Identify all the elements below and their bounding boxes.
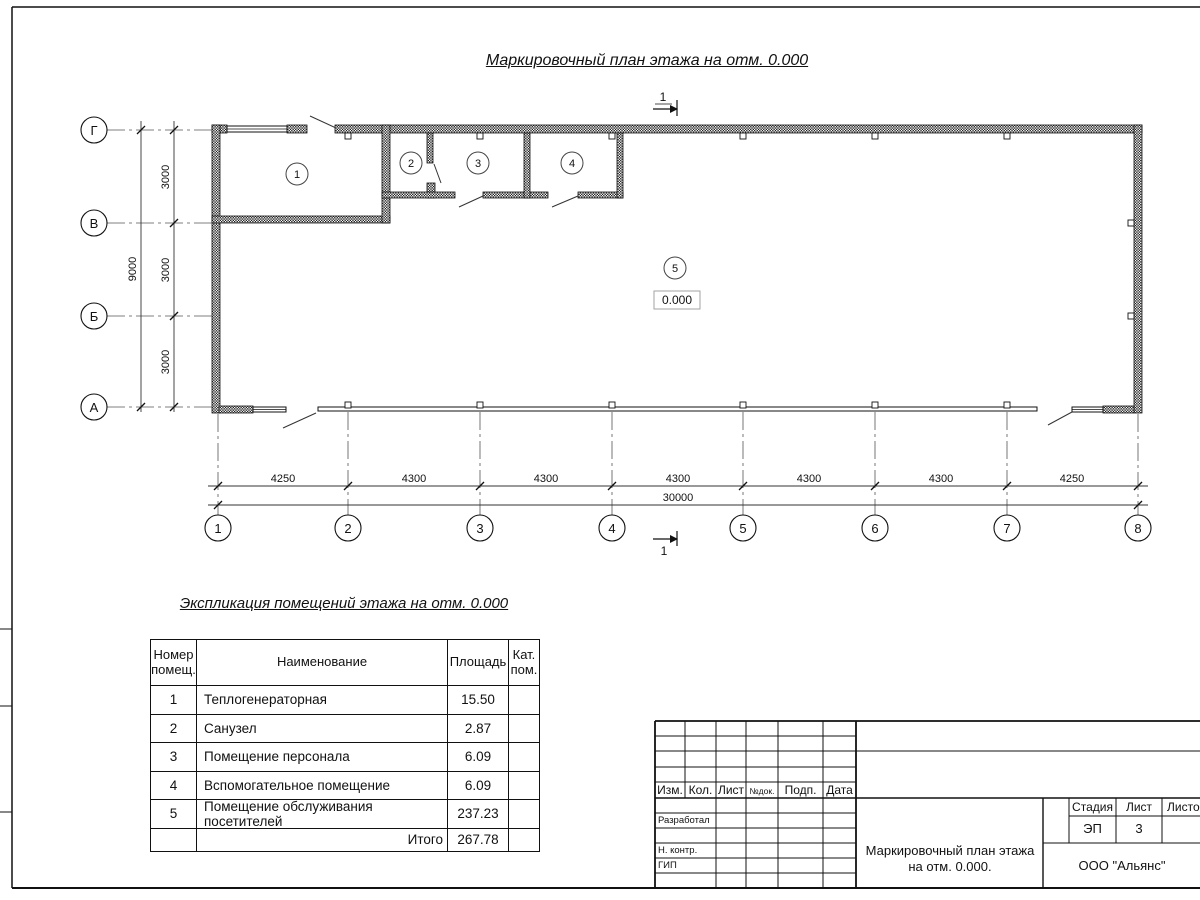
row-num: 5 [151,800,197,829]
row-name: Помещение обслуживания посетителей [197,800,448,829]
windows [227,126,1103,412]
axis-number-5: 5 [739,521,746,536]
plan-title: Маркировочный план этажа на отм. 0.000 [397,52,897,70]
col-header-number: Номер помещ. [151,640,197,686]
rev-header-data: Дата [823,783,856,797]
company-name: ООО "Альянс" [1044,858,1200,874]
rev-header-izm: Изм. [655,783,685,797]
row-category [509,715,539,744]
dim-4-5: 4300 [666,473,690,485]
doc-title: Маркировочный план этажа на отм. 0.000. [858,843,1042,875]
dim-7-8: 4250 [1060,473,1084,485]
row-name: Теплогенераторная [197,686,448,715]
dim-5-6: 4300 [797,473,821,485]
total-label: Итого [197,829,448,851]
role-developed: Разработал [658,815,716,827]
axis-number-2: 2 [344,521,351,536]
stage-value: ЭП [1069,821,1116,837]
rev-header-podp: Подп. [778,783,823,797]
axis-letter-v: В [90,216,99,231]
total-category [509,829,539,851]
row-name: Помещение персонала [197,743,448,772]
axis-number-1: 1 [214,521,221,536]
row-area: 237.23 [448,800,509,829]
axis-number-7: 7 [1003,521,1010,536]
total-row-empty [151,829,197,851]
axis-bubbles: Г В Б А 1 2 3 4 5 6 7 8 [81,117,1151,541]
row-category [509,772,539,801]
row-num: 3 [151,743,197,772]
storefront-glazing [318,402,1037,411]
role-gip: ГИП [658,860,716,872]
dimension-ticks [137,126,1142,509]
axis-letter-a: А [90,400,99,415]
axis-number-3: 3 [476,521,483,536]
rev-header-list: Лист [716,783,746,797]
section-label-bottom: 1 [661,544,668,558]
explication-title: Экспликация помещений этажа на отм. 0.00… [150,595,538,612]
row-num: 4 [151,772,197,801]
section-label-top: 1 [660,90,667,104]
sheet-label: Лист [1116,800,1162,815]
sheets-label: Листов [1167,800,1200,815]
dim-3-4: 4300 [534,473,558,485]
axis-number-6: 6 [871,521,878,536]
row-category [509,686,539,715]
row-area: 2.87 [448,715,509,744]
dim-b-a: 3000 [160,350,172,374]
dim-6-7: 4300 [929,473,953,485]
dimension-lines [141,121,1148,505]
rev-header-ndok: №док. [746,786,778,797]
row-num: 1 [151,686,197,715]
col-header-category: Кат. пом. [509,640,539,686]
room-number-4: 4 [569,158,575,170]
rev-header-kol: Кол. [685,783,716,797]
axis-number-4: 4 [608,521,615,536]
axis-number-8: 8 [1134,521,1141,536]
pilaster-marks [345,133,1134,319]
room-number-1: 1 [294,169,300,181]
stage-label: Стадия [1069,800,1116,815]
dim-1-2: 4250 [271,473,295,485]
elevation-value: 0.000 [662,293,692,307]
row-category [509,800,539,829]
dim-g-v: 3000 [160,165,172,189]
sheet-value: 3 [1116,821,1162,837]
total-area: 267.78 [448,829,509,851]
row-name: Вспомогательное помещение [197,772,448,801]
room-number-3: 3 [475,158,481,170]
room-number-5: 5 [672,263,678,275]
dim-v-b: 3000 [160,258,172,282]
room-number-2: 2 [408,158,414,170]
section-mark-top: 1 [653,90,678,116]
row-area: 6.09 [448,772,509,801]
drawing-sheet: 4250 4300 4300 4300 4300 4300 4250 30000… [0,0,1200,900]
elevation-mark: 0.000 [654,291,700,309]
role-ncontrol: Н. контр. [658,845,716,857]
explication-table: Номер помещ. Наименование Площадь Кат. п… [150,639,540,852]
dim-2-3: 4300 [402,473,426,485]
col-header-area: Площадь [448,640,509,686]
row-name: Санузел [197,715,448,744]
room-bubbles: 1 2 3 4 5 [286,152,686,279]
col-header-name: Наименование [197,640,448,686]
row-area: 6.09 [448,743,509,772]
axis-letter-g: Г [90,123,97,138]
row-category [509,743,539,772]
axis-letter-b: Б [90,309,99,324]
dim-total-vertical: 9000 [127,257,139,281]
row-area: 15.50 [448,686,509,715]
dim-total-horizontal: 30000 [663,492,694,504]
section-mark-bottom: 1 [653,531,678,558]
row-num: 2 [151,715,197,744]
